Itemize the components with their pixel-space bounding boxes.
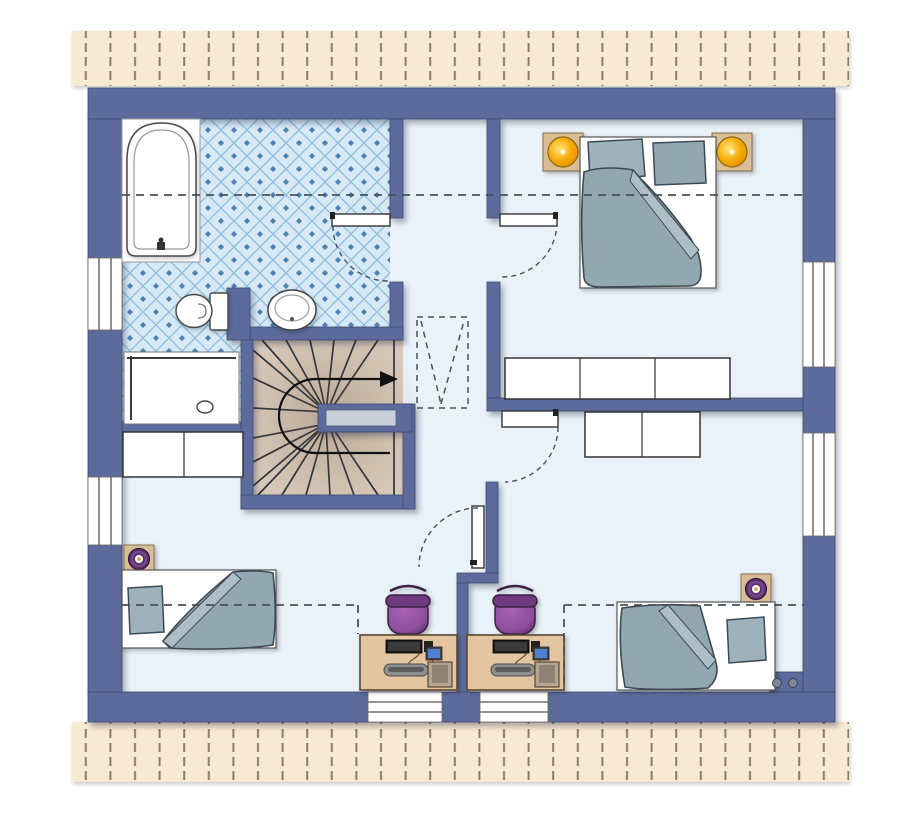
wardrobe-two-sections: [585, 412, 700, 457]
toilet: [176, 293, 228, 330]
wall-bedroom-large-left-lower: [487, 282, 500, 398]
chest-two-sections: [123, 432, 243, 477]
wall-outer-left: [88, 119, 122, 692]
window-left-lower: [88, 477, 122, 545]
bathtub: [127, 123, 196, 256]
pillow: [653, 141, 706, 185]
wall-stair-bottom: [241, 495, 415, 509]
window-left-upper: [88, 258, 122, 330]
floor-plan: [0, 0, 920, 822]
drain-icon: [290, 317, 294, 321]
wall-wc-stub: [227, 288, 250, 340]
door-leaf: [502, 411, 558, 427]
floor-plan-page: [0, 0, 920, 822]
window-bottom-right: [480, 692, 548, 722]
yellow-lamp-icon-left: [548, 137, 578, 167]
wall-jog: [457, 573, 498, 583]
purple-lamp-icon: [746, 579, 767, 600]
door-leaf: [332, 214, 390, 226]
roof-overhang-strip-bottom: [72, 722, 849, 782]
window-bottom-left: [368, 692, 442, 722]
wall-dot: [789, 679, 798, 688]
roof-overhang-strip-top: [72, 31, 849, 86]
door-leaf: [472, 506, 484, 568]
wall-bathroom-bottom: [250, 327, 403, 340]
wall-outer-right: [803, 119, 835, 692]
bathtub-faucet-icon: [157, 242, 165, 250]
wall-bathroom-right-upper: [390, 119, 403, 218]
door-leaf: [500, 214, 557, 226]
washbasin: [268, 290, 316, 330]
wall-below-middle: [486, 482, 498, 573]
wardrobe-three-sections: [505, 358, 730, 399]
stair-divider-slot: [326, 410, 396, 426]
wall-outer-top: [88, 88, 835, 119]
wall-middle-horizontal: [487, 398, 803, 411]
wall-dot: [773, 679, 782, 688]
window-right-upper: [803, 262, 835, 367]
wall-stair-left: [241, 340, 253, 509]
window-right-lower: [803, 433, 835, 536]
pillow: [727, 617, 766, 663]
shower: [124, 352, 239, 424]
pillow: [128, 586, 164, 634]
wall-bedroom-large-left-upper: [487, 119, 500, 218]
purple-lamp-icon: [129, 549, 150, 570]
wall-outer-bottom: [88, 692, 835, 722]
yellow-lamp-icon-right: [717, 137, 747, 167]
